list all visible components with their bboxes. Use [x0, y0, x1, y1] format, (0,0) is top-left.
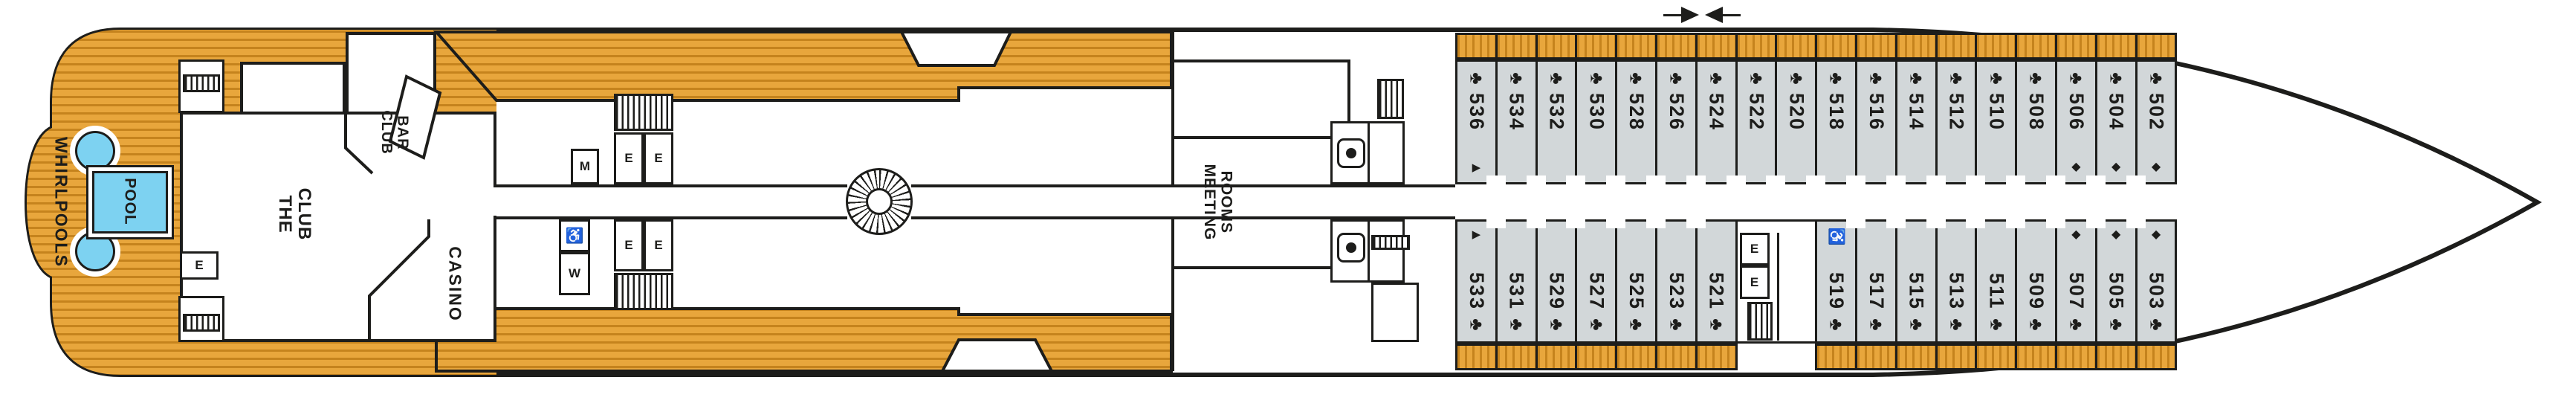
diamond-icon: ◆ [2138, 161, 2175, 173]
cabin-514: ♣514 [1895, 59, 1938, 184]
corridor-wall [911, 184, 1455, 187]
diamond-icon: ◆ [2057, 229, 2095, 241]
balcony-503 [2135, 344, 2178, 370]
balcony-511 [1975, 344, 2017, 370]
cabin-530: ♣530 [1575, 59, 1617, 184]
elevator-label: E [624, 238, 632, 253]
cabin-536: ♣536▶ [1455, 59, 1498, 184]
balcony-528 [1615, 33, 1657, 59]
cabin-door [1926, 175, 1946, 187]
deck-plan: M ♿ W E E E E E WHIRLPOOLS [0, 0, 2576, 409]
balcony-504 [2095, 33, 2138, 59]
bottom-wood-band [436, 309, 1171, 371]
balcony-526 [1655, 33, 1698, 59]
balcony-522 [1735, 33, 1778, 59]
elevator-label: E [624, 151, 632, 166]
cabin-door [2006, 216, 2025, 228]
cabin-number: 512 [1938, 62, 1975, 182]
balcony-517 [1855, 344, 1897, 370]
cabin-512: ♣512 [1935, 59, 1978, 184]
top-deck-cutout [902, 32, 1011, 65]
cabin-517: ♣517 [1855, 219, 1897, 344]
meeting-rooms-label: MEETINGROOMS [1200, 164, 1234, 241]
balcony-521 [1695, 344, 1738, 370]
cabin-513: ♣513 [1935, 219, 1978, 344]
balcony-531 [1495, 344, 1538, 370]
balcony-525 [1615, 344, 1657, 370]
cabin-520: ♣520 [1775, 59, 1817, 184]
service-divider [1368, 121, 1370, 184]
stairs-icon [1377, 79, 1404, 119]
cabin-door [1527, 175, 1546, 187]
cabin-door [1846, 216, 1865, 228]
elevator-label: E [654, 151, 662, 166]
cabin-number: 529 [1538, 222, 1576, 341]
cabin-number: 516 [1857, 62, 1895, 182]
elevator-box: E [614, 219, 644, 271]
club-upper-room [240, 62, 346, 115]
meeting-wall [1171, 136, 1333, 139]
cabin-number: 513 [1938, 222, 1975, 341]
cabin-529: ♣529 [1535, 219, 1578, 344]
cabin-number: 520 [1777, 62, 1815, 182]
balcony-506 [2055, 33, 2097, 59]
cabin-door [1486, 216, 1506, 228]
restroom-women-box: W [559, 252, 590, 295]
cabin-door [1686, 175, 1706, 187]
balcony-536 [1455, 33, 1498, 59]
cabin-508: ♣508 [2015, 59, 2057, 184]
cabin-door [1846, 175, 1865, 187]
cabin-number: 527 [1577, 222, 1615, 341]
cabin-number: 510 [1977, 62, 2015, 182]
meeting-wall [1171, 59, 1350, 62]
cabin-number: 526 [1657, 62, 1695, 182]
cabin-504: ♣504◆ [2095, 59, 2138, 184]
cabin-door [1886, 216, 1906, 228]
cabin-525: ♣525 [1615, 219, 1657, 344]
service-divider [1368, 219, 1370, 283]
balcony-509 [2015, 344, 2057, 370]
cabin-511: ♣511 [1975, 219, 2017, 344]
cabin-door [1726, 175, 1746, 187]
cabin-533: ♣533▶ [1455, 219, 1498, 344]
cabin-door [1686, 216, 1706, 228]
wheelchair-icon: ♿ [1817, 229, 1855, 244]
restroom-men-label: M [580, 159, 590, 174]
cabin-521: ♣521 [1695, 219, 1738, 344]
dumbwaiter-icon [1337, 138, 1365, 168]
elevator-label: E [654, 238, 662, 253]
diamond-icon: ◆ [2097, 161, 2135, 173]
restroom-men-box: M [571, 149, 599, 184]
cabin-528: ♣528 [1615, 59, 1657, 184]
stairs-icon [614, 94, 673, 131]
cabin-door [1886, 175, 1906, 187]
service-room-lower [1371, 283, 1419, 342]
cabin-531: ♣531 [1495, 219, 1538, 344]
cabin-524: ♣524 [1695, 59, 1738, 184]
restroom-women-label: W [569, 266, 580, 281]
cabin-door [1527, 216, 1546, 228]
balcony-524 [1695, 33, 1738, 59]
cabin-505: ♣505◆ [2095, 219, 2138, 344]
cabin-door [1966, 175, 1985, 187]
balcony-510 [1975, 33, 2017, 59]
cabin-number: 524 [1698, 62, 1735, 182]
cabin-door [2086, 175, 2106, 187]
cabin-number: 528 [1617, 62, 1655, 182]
cabin-526: ♣526 [1655, 59, 1698, 184]
meeting-wall [1171, 266, 1333, 269]
cabin-door [1926, 216, 1946, 228]
club-bar-room [346, 32, 436, 115]
cabin-523: ♣523 [1655, 219, 1698, 344]
elevator-box: E [1740, 233, 1770, 265]
balcony-516 [1855, 33, 1897, 59]
cabin-door [2006, 175, 2025, 187]
balcony-530 [1575, 33, 1617, 59]
cabin-number: 525 [1617, 222, 1655, 341]
balcony-508 [2015, 33, 2057, 59]
triangle-icon: ▶ [1457, 229, 1495, 240]
elevator-box: E [644, 219, 673, 271]
balcony-518 [1815, 33, 1857, 59]
meeting-wall [1347, 59, 1350, 124]
cabin-door [2126, 216, 2146, 228]
accessible-wc-box: ♿ [559, 219, 590, 252]
the-club-label: THECLUB [275, 188, 314, 241]
cabin-519: ♣519♿ [1815, 219, 1857, 344]
stairs-icon [183, 74, 220, 92]
cabin-516: ♣516 [1855, 59, 1897, 184]
balcony-533 [1455, 344, 1498, 370]
cabin-507: ♣507◆ [2055, 219, 2097, 344]
cabin-number: 532 [1538, 62, 1576, 182]
balcony-512 [1935, 33, 1978, 59]
cabin-door [1646, 216, 1666, 228]
bottom-deck-cutout [942, 340, 1052, 371]
balcony-520 [1775, 33, 1817, 59]
cabin-door [1646, 175, 1666, 187]
elevator-box: E [1740, 265, 1770, 299]
casino-label: CASINO [446, 246, 465, 321]
diamond-icon: ◆ [2057, 161, 2095, 173]
balcony-514 [1895, 33, 1938, 59]
cabin-number: 508 [2017, 62, 2055, 182]
cabin-number: 521 [1698, 222, 1735, 341]
cabin-door [1606, 216, 1625, 228]
plan-split-arrows-icon [1663, 7, 1741, 25]
cabin-door [1806, 175, 1825, 187]
whirlpools-label: WHIRLPOOLS [52, 137, 71, 268]
balcony-527 [1575, 344, 1617, 370]
cabin-510: ♣510 [1975, 59, 2017, 184]
elevator-box-stern: E [180, 251, 219, 280]
meeting-wall [1171, 32, 1174, 184]
cabin-527: ♣527 [1575, 219, 1617, 344]
diamond-icon: ◆ [2138, 229, 2175, 241]
cabin-522: ♣522 [1735, 59, 1778, 184]
club-door-opening [489, 187, 499, 216]
stairs-icon [1747, 302, 1773, 341]
cabin-door [2126, 175, 2146, 187]
cabin-506: ♣506◆ [2055, 59, 2097, 184]
balcony-519 [1815, 344, 1857, 370]
triangle-icon: ▶ [1457, 162, 1495, 173]
elevator-box: E [644, 132, 673, 184]
cabin-number: 518 [1817, 62, 1855, 182]
service-divider [1777, 233, 1779, 341]
diamond-icon: ◆ [2097, 229, 2135, 241]
balcony-505 [2095, 344, 2138, 370]
meeting-wall [1171, 216, 1174, 371]
club-bar-label: CLUBBAR [378, 110, 410, 155]
cabin-number: 531 [1498, 222, 1535, 341]
cabin-number: 522 [1738, 62, 1776, 182]
cabin-number: 511 [1977, 222, 2015, 341]
cabin-number: 534 [1498, 62, 1535, 182]
stairs-icon [183, 314, 220, 332]
elevator-label: E [1750, 275, 1758, 290]
pool-label: POOL [121, 178, 138, 225]
cabin-number: 515 [1897, 222, 1935, 341]
cabin-door [1606, 175, 1625, 187]
balcony-502 [2135, 33, 2178, 59]
cabin-door [2086, 216, 2106, 228]
cabin-door [1566, 175, 1585, 187]
dumbwaiter-icon [1337, 233, 1365, 263]
cabin-518: ♣518 [1815, 59, 1857, 184]
balcony-532 [1535, 33, 1578, 59]
balcony-523 [1655, 344, 1698, 370]
stairs-icon [1371, 235, 1410, 250]
cabin-532: ♣532 [1535, 59, 1578, 184]
cabin-number: 530 [1577, 62, 1615, 182]
elevator-label: E [1750, 242, 1758, 257]
corridor-wall [496, 184, 847, 187]
balcony-529 [1535, 344, 1578, 370]
cabin-number: 514 [1897, 62, 1935, 182]
cabin-door [1766, 175, 1785, 187]
cabin-509: ♣509 [2015, 219, 2057, 344]
cabin-number: 509 [2017, 222, 2055, 341]
balcony-515 [1895, 344, 1938, 370]
cabin-number: 523 [1657, 222, 1695, 341]
balcony-534 [1495, 33, 1538, 59]
wheelchair-icon: ♿ [566, 227, 584, 245]
cabin-door [1486, 175, 1506, 187]
cabin-door [1966, 216, 1985, 228]
balcony-507 [2055, 344, 2097, 370]
balcony-513 [1935, 344, 1978, 370]
cabin-503: ♣503◆ [2135, 219, 2178, 344]
elevator-box: E [614, 132, 644, 184]
stairs-icon [614, 273, 673, 310]
cabin-number: 517 [1857, 222, 1895, 341]
cabin-534: ♣534 [1495, 59, 1538, 184]
cabin-door [2046, 175, 2065, 187]
cabin-502: ♣502◆ [2135, 59, 2178, 184]
cabin-door [2046, 216, 2065, 228]
spiral-staircase-core [866, 188, 893, 215]
cabin-515: ♣515 [1895, 219, 1938, 344]
cabin-door [1566, 216, 1585, 228]
